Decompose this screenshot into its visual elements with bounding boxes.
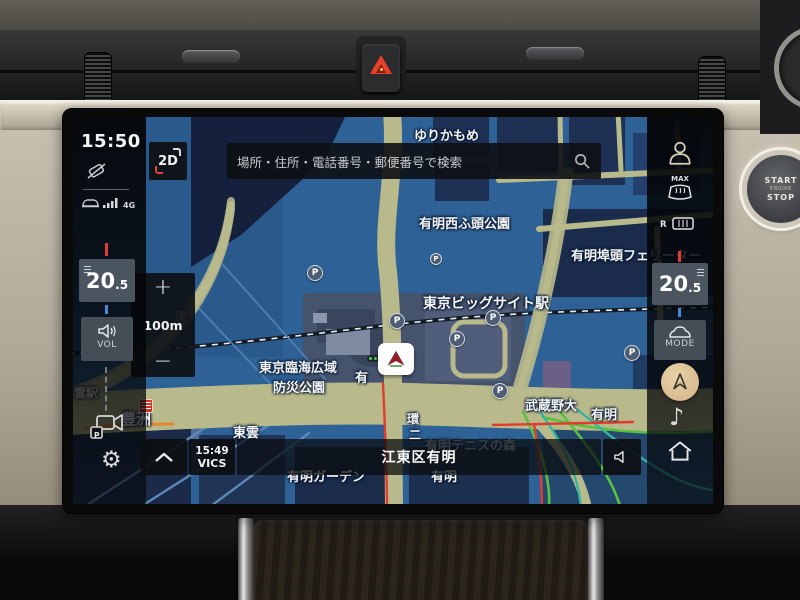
zoom-in-button[interactable]: + [154,277,172,299]
max-defrost-label: MAX [647,175,713,183]
camera-p-badge: P [94,431,100,440]
vent-slider-right[interactable] [526,47,584,60]
zoom-out-button[interactable]: − [154,351,172,373]
passenger-temp-fraction: .5 [688,281,701,295]
passenger-temp-value: 20 [659,272,688,296]
driver-temp-fraction: .5 [115,278,128,292]
climate-seat-icon-right [697,268,704,276]
vics-info-button[interactable]: 15:49 VICS [189,439,235,475]
settings-gear-icon[interactable]: ⚙ [101,447,122,473]
search-icon [574,153,591,170]
vehicle-position-marker [367,343,415,383]
connected-car-icon [81,196,100,209]
touchscreen: ゆりかもめ有明西ふ頭公園有明埠頭フェリーター東京ビッグサイト駅東京臨海広域防災公… [73,117,713,504]
engine-label: ENGINE [747,186,800,192]
left-system-panel: 15:50 4G 20 . [73,117,146,504]
destination-search-field[interactable]: 場所・住所・電話番号・郵便番号で検索 [227,143,601,179]
volume-label: VOL [81,340,133,350]
map-scale-label: 100m [143,318,182,333]
windshield-defrost-icon[interactable] [667,183,693,202]
touchscreen-bezel: ゆりかもめ有明西ふ頭公園有明埠頭フェリーター東京ビッグサイト駅東京臨海広域防災公… [62,108,724,514]
gauge-arc [774,26,800,110]
signal-strength-icon [103,197,119,208]
network-type-label: 4G [123,201,135,210]
chevron-up-icon [154,451,174,463]
current-location-text: 江東区有明 [382,447,457,467]
phone-disconnected-icon [85,161,109,181]
vics-time: 15:49 [195,445,228,457]
compass-corner-red-icon [155,166,163,174]
mute-guidance-button[interactable] [603,439,641,475]
vics-label: VICS [198,457,227,470]
passenger-temperature-control[interactable]: 20 .5 [652,263,708,305]
volume-button[interactable]: VOL [81,317,133,361]
rear-defrost-icon[interactable] [671,216,695,233]
guidance-speaker-icon [612,449,632,465]
compass-corner-white-icon [173,148,181,156]
left-slider-track [105,367,107,411]
compass-heading-button[interactable] [661,363,699,401]
temp-slider-cold-tick-left [105,305,108,314]
right-system-panel: MAX R 20 .5 [647,117,713,504]
vent-slider-left[interactable] [182,50,240,63]
search-placeholder: 場所・住所・電話番号・郵便番号で検索 [237,152,462,171]
home-icon[interactable] [666,439,694,463]
drive-mode-button[interactable]: MODE [654,320,706,360]
start-label: START [747,176,800,185]
console-chrome-left [238,518,254,600]
temp-slider-cold-tick-right [678,308,681,317]
vehicle-arrow-icon [383,347,409,371]
instrument-cluster-corner [760,0,800,134]
hazard-housing [356,36,406,106]
vehicle-marker-balloon [378,343,414,375]
hazard-button[interactable] [362,44,400,92]
temp-slider-hot-tick-left [105,243,108,256]
console-wood-panel [254,520,588,600]
mode-label: MODE [654,339,706,349]
media-note-icon[interactable]: ♪ [669,403,684,431]
climate-seat-icon-left [84,265,91,273]
current-location-bar[interactable]: 江東区有明 [237,439,601,475]
dashboard-scene: START ENGINE STOP [0,0,800,600]
map-view-2d-button[interactable]: 2D [149,142,187,180]
speaker-icon [96,322,118,340]
rear-defrost-label: R [660,220,667,230]
driver-temperature-control[interactable]: 20 .5 [79,259,135,302]
expand-bottom-bar-button[interactable] [141,439,187,475]
temp-slider-hot-tick-right [678,251,681,262]
stop-label: STOP [747,193,800,202]
clock: 15:50 [81,131,141,152]
status-divider [83,189,129,190]
user-profile-icon[interactable] [666,139,694,167]
compass-arrow-icon [668,370,692,394]
car-mode-icon [667,325,693,339]
console-chrome-right [588,518,604,600]
